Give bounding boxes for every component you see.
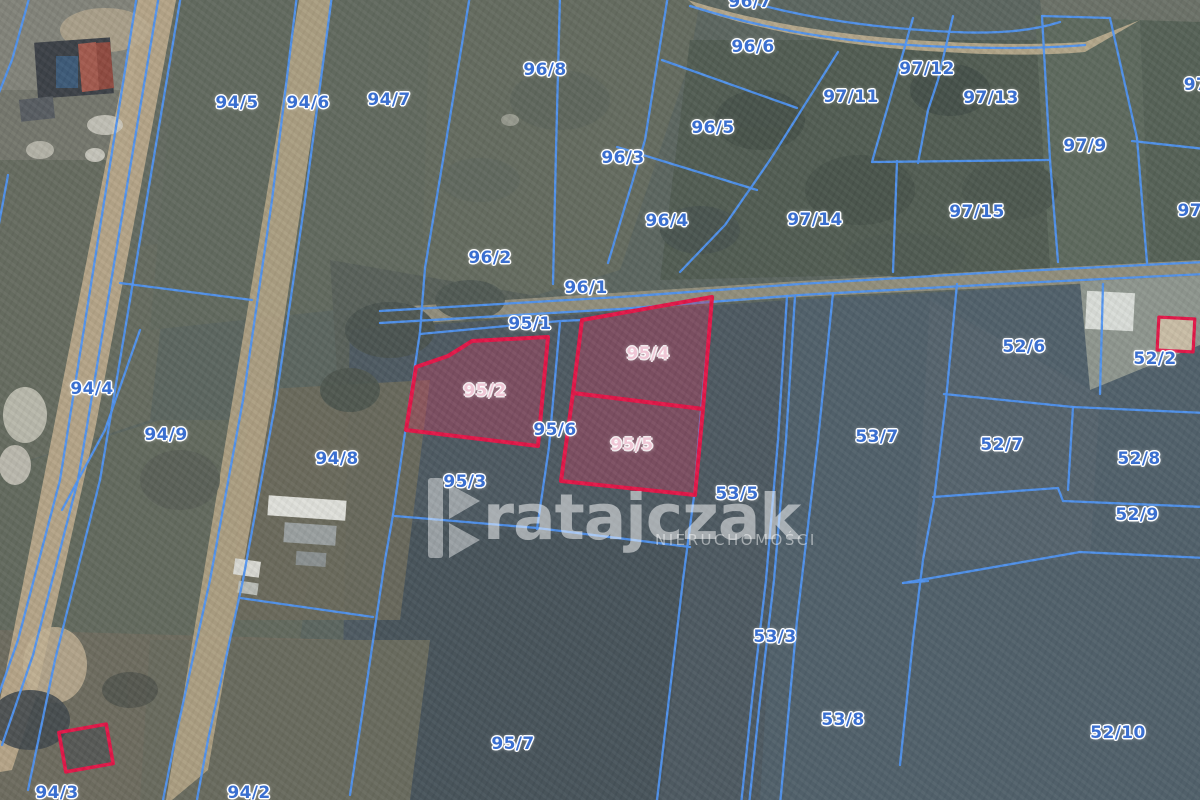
parcel-label-96-7: 96/7 (728, 0, 771, 12)
parcel-label-95-7: 95/7 (491, 734, 534, 754)
parcel-label-94-3: 94/3 (35, 783, 78, 800)
parcel-label-97-9: 97/9 (1063, 136, 1106, 156)
parcel-label-52-8: 52/8 (1117, 449, 1160, 469)
parcel-label-96-5: 96/5 (691, 118, 734, 138)
parcel-label-96-4: 96/4 (645, 211, 688, 231)
parcel-label-97-12: 97/12 (899, 59, 955, 79)
parcel-label-96-2: 96/2 (468, 248, 511, 268)
parcel-label-96-3: 96/3 (601, 148, 644, 168)
aerial-basemap (0, 0, 1200, 800)
parcel-label-94-5: 94/5 (215, 93, 258, 113)
parcel-label-53-8: 53/8 (821, 710, 864, 730)
parcel-label-96-1: 96/1 (564, 278, 607, 298)
parcel-label-53-3: 53/3 (753, 627, 796, 647)
parcel-label-52-10: 52/10 (1090, 723, 1146, 743)
parcel-label-94-6: 94/6 (286, 93, 329, 113)
parcel-label-96-6: 96/6 (731, 37, 774, 57)
parcel-label-95-5: 95/5 (610, 435, 653, 455)
parcel-label-97-11: 97/11 (823, 87, 879, 107)
parcel-label-95-3: 95/3 (443, 472, 486, 492)
parcel-label-52-9: 52/9 (1115, 505, 1158, 525)
parcel-label-94-2: 94/2 (227, 783, 270, 800)
parcel-label-96-8: 96/8 (523, 60, 566, 80)
parcel-label-53-7: 53/7 (855, 427, 898, 447)
parcel-label-94-9: 94/9 (144, 425, 187, 445)
cadastral-map[interactable]: ratajczak NIERUCHOMOŚCI 94/594/694/796/8… (0, 0, 1200, 800)
parcel-label-52-7: 52/7 (980, 435, 1023, 455)
watermark-subtitle: NIERUCHOMOŚCI (655, 531, 783, 549)
parcel-label-52-2: 52/2 (1133, 349, 1176, 369)
parcel-label-95-1: 95/1 (508, 314, 551, 334)
parcel-label-95-2: 95/2 (463, 381, 506, 401)
parcel-label-94-4: 94/4 (70, 379, 113, 399)
parcel-label-53-5: 53/5 (715, 484, 758, 504)
parcel-label-97-15: 97/15 (949, 202, 1005, 222)
building-outline-52-2 (1157, 317, 1195, 352)
parcel-label-94-8: 94/8 (315, 449, 358, 469)
parcel-label-52-6: 52/6 (1002, 337, 1045, 357)
parcel-label-97: 97 (1184, 75, 1200, 95)
parcel-label-97-13: 97/13 (963, 88, 1019, 108)
parcel-label-97-: 97/ (1177, 201, 1200, 221)
parcel-label-95-6: 95/6 (533, 420, 576, 440)
parcel-label-94-7: 94/7 (367, 90, 410, 110)
parcel-label-97-14: 97/14 (787, 210, 843, 230)
parcel-label-95-4: 95/4 (626, 344, 669, 364)
building-outline-94-3 (59, 724, 113, 772)
